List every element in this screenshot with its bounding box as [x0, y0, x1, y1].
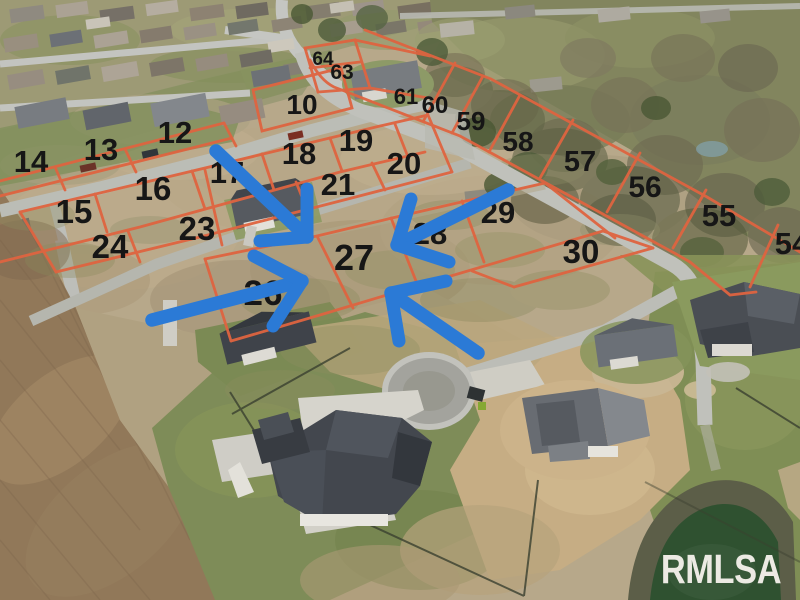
svg-text:15: 15	[56, 193, 93, 230]
svg-text:55: 55	[702, 198, 736, 233]
svg-text:12: 12	[158, 115, 192, 150]
svg-text:56: 56	[628, 171, 661, 204]
svg-text:18: 18	[282, 136, 316, 171]
svg-text:RMLSA: RMLSA	[661, 547, 781, 592]
svg-text:58: 58	[502, 126, 533, 157]
svg-text:60: 60	[422, 92, 449, 119]
svg-text:27: 27	[334, 237, 374, 278]
svg-text:30: 30	[563, 233, 600, 270]
svg-text:61: 61	[394, 84, 418, 109]
svg-text:13: 13	[84, 132, 118, 167]
svg-text:24: 24	[92, 228, 129, 265]
svg-text:10: 10	[286, 89, 317, 120]
svg-text:21: 21	[321, 167, 355, 202]
svg-text:19: 19	[339, 123, 373, 158]
svg-text:57: 57	[564, 146, 596, 178]
svg-text:14: 14	[14, 144, 49, 179]
svg-text:20: 20	[387, 146, 421, 181]
svg-text:23: 23	[179, 210, 216, 247]
svg-text:63: 63	[330, 61, 353, 84]
svg-text:59: 59	[457, 106, 486, 136]
svg-text:16: 16	[135, 170, 172, 207]
svg-text:54: 54	[775, 226, 800, 261]
svg-text:64: 64	[312, 49, 334, 70]
